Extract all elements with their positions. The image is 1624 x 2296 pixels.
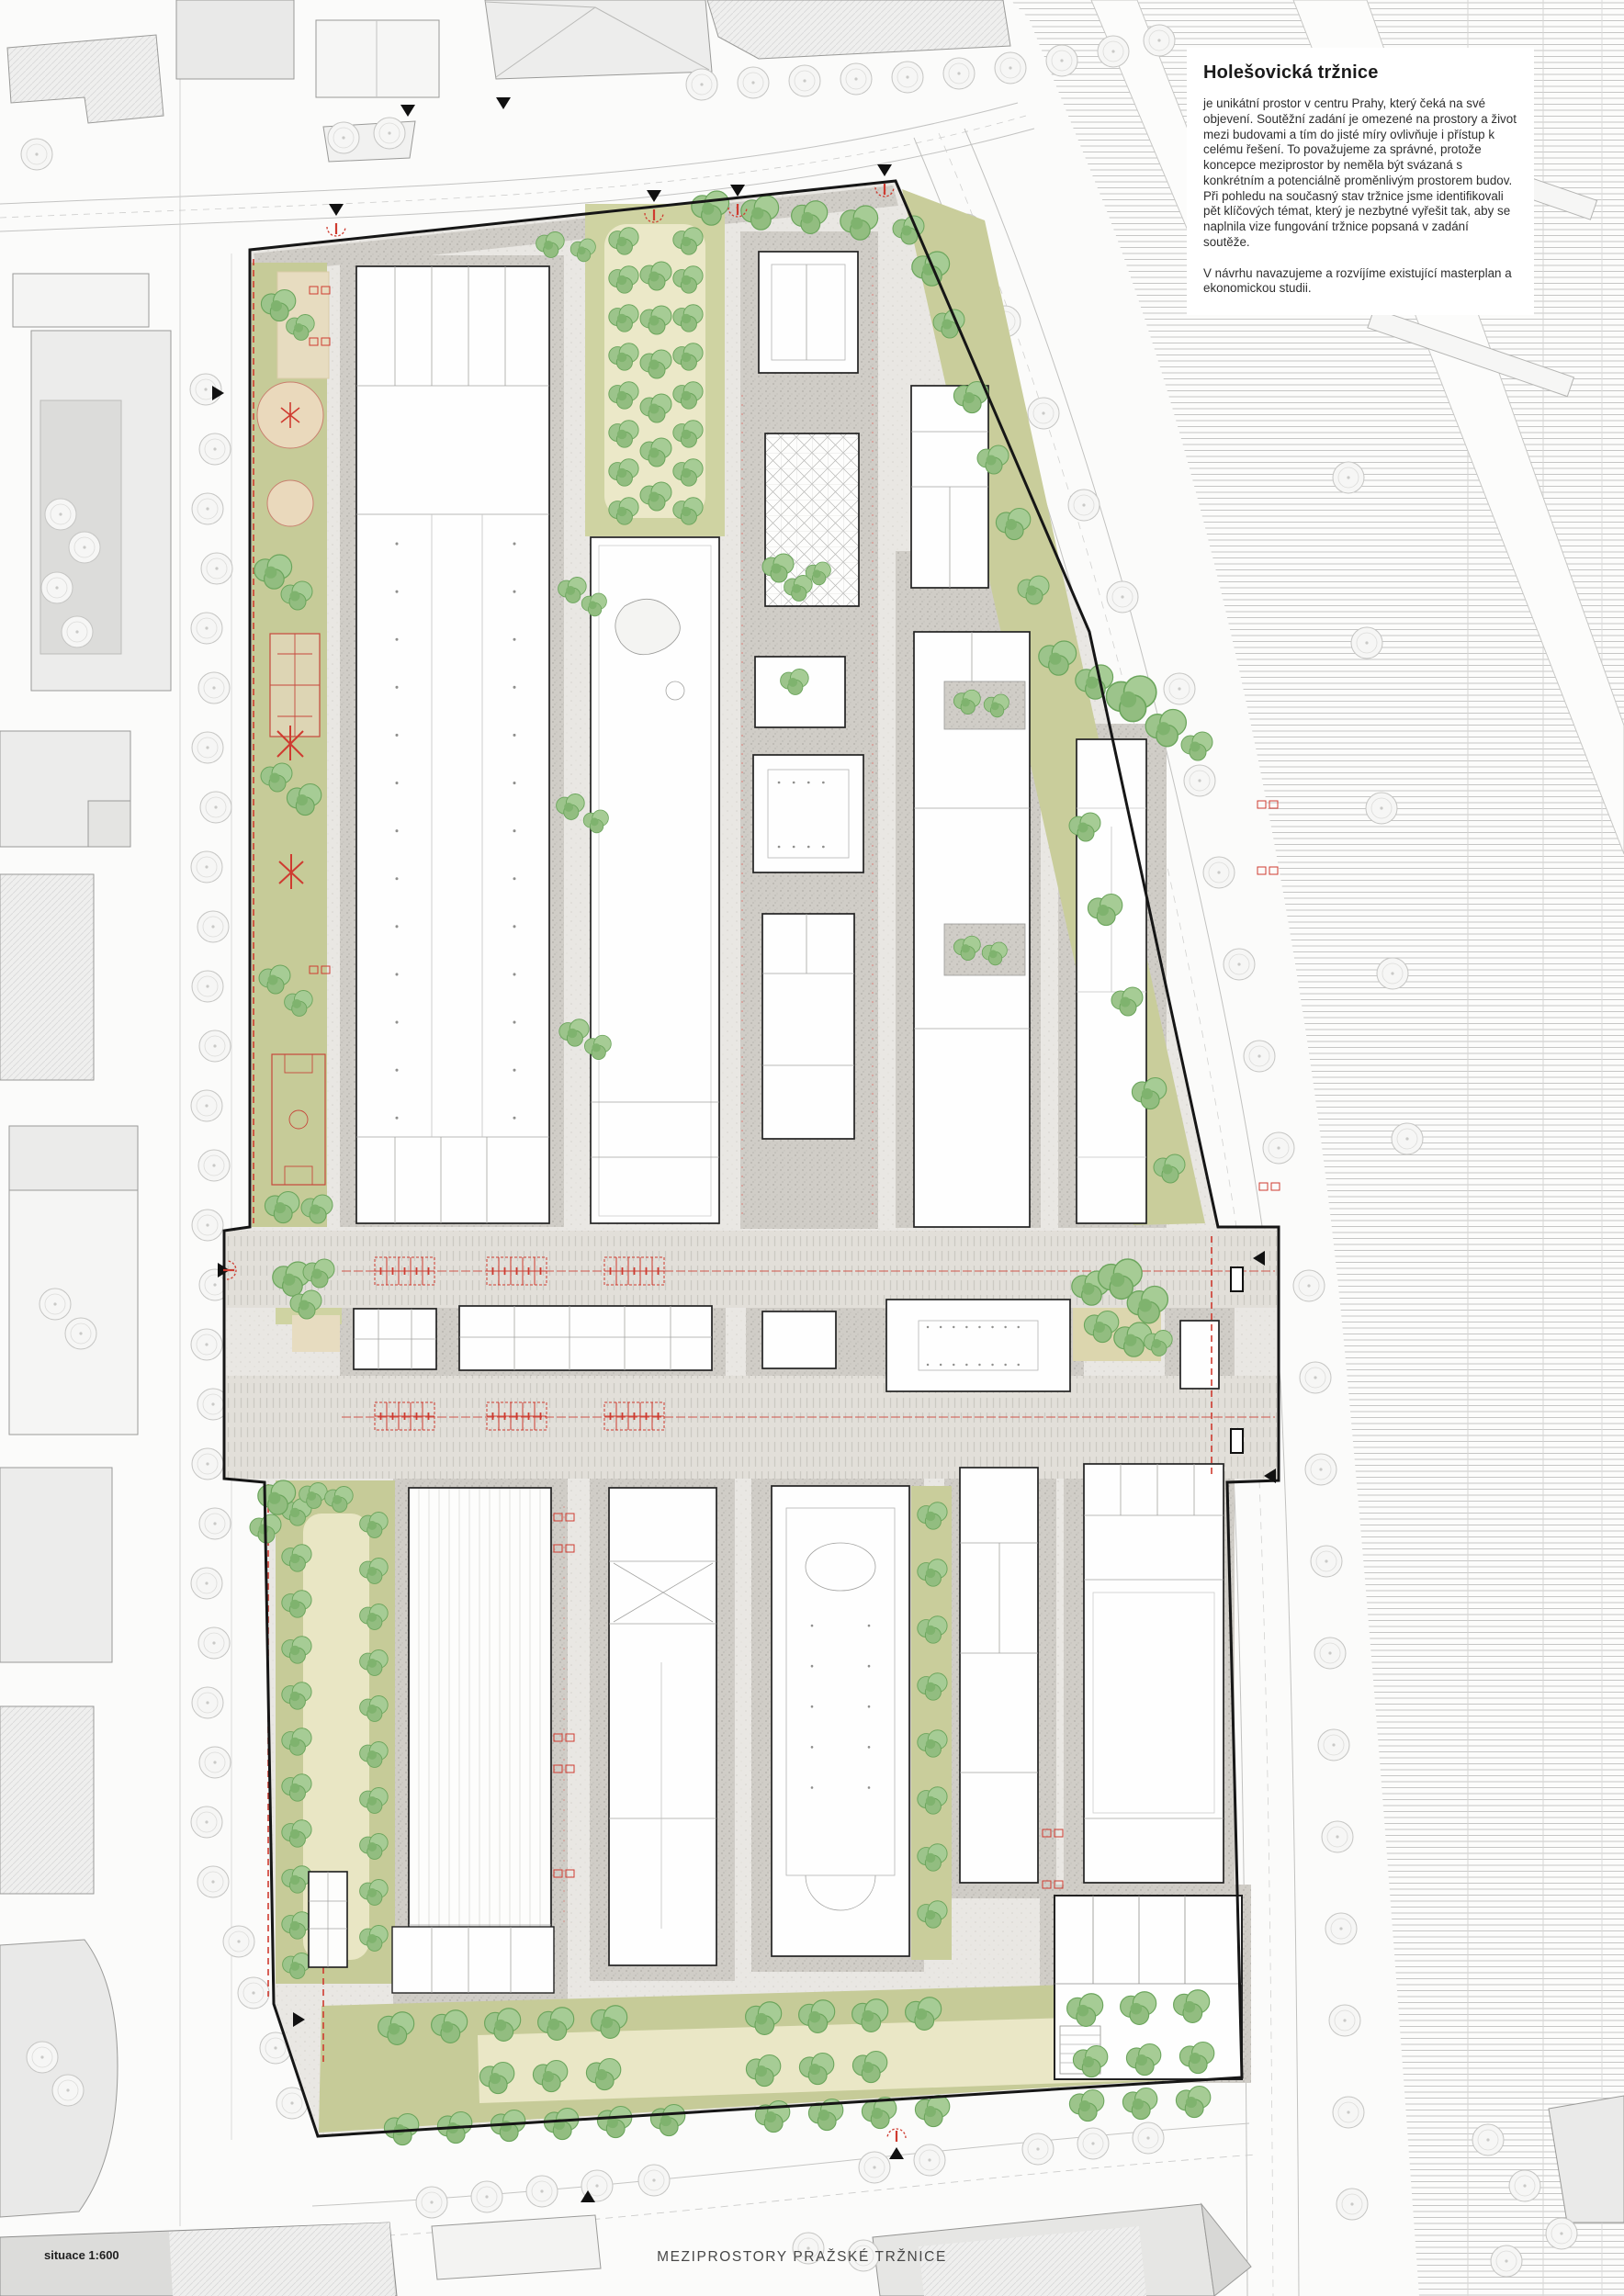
project-paragraph-2: V návrhu navazujeme a rozvíjíme existují…: [1203, 266, 1517, 298]
hall-basilica: [772, 1486, 909, 1956]
site-plan-drawing: [0, 0, 1624, 2296]
mid-building-2: [459, 1306, 712, 1370]
stop-marker: [1231, 1429, 1243, 1453]
hall-south-east-2: [1084, 1464, 1224, 1883]
mid-building-3: [762, 1311, 836, 1368]
hall-columned: [753, 755, 863, 872]
hall-west-large: [356, 266, 549, 1223]
drawing-title: MEZIPROSTORY PRAŽSKÉ TRŽNICE: [657, 2249, 947, 2266]
hall-south-west: [409, 1488, 551, 1942]
mid-building-4: [1180, 1321, 1219, 1389]
hall-courtyard-building: [759, 252, 858, 373]
project-title: Holešovická tržnice: [1203, 62, 1517, 84]
stop-marker: [1231, 1267, 1243, 1291]
market-site: [212, 97, 1280, 2202]
hall-south-east-1: [960, 1468, 1038, 1883]
hall-south-center: [609, 1488, 716, 1965]
project-paragraph-1: je unikátní prostor v centru Prahy, kter…: [1203, 96, 1517, 251]
project-description-card: Holešovická tržnice je unikátní prostor …: [1187, 48, 1534, 315]
scale-label: situace 1:600: [44, 2248, 119, 2262]
lapidarium: [886, 1300, 1070, 1391]
playground-circle: [267, 480, 313, 526]
hall-small-2: [762, 914, 854, 1139]
hall-south-west-annex: [392, 1927, 554, 1993]
competition-board: Holešovická tržnice je unikátní prostor …: [0, 0, 1624, 2296]
